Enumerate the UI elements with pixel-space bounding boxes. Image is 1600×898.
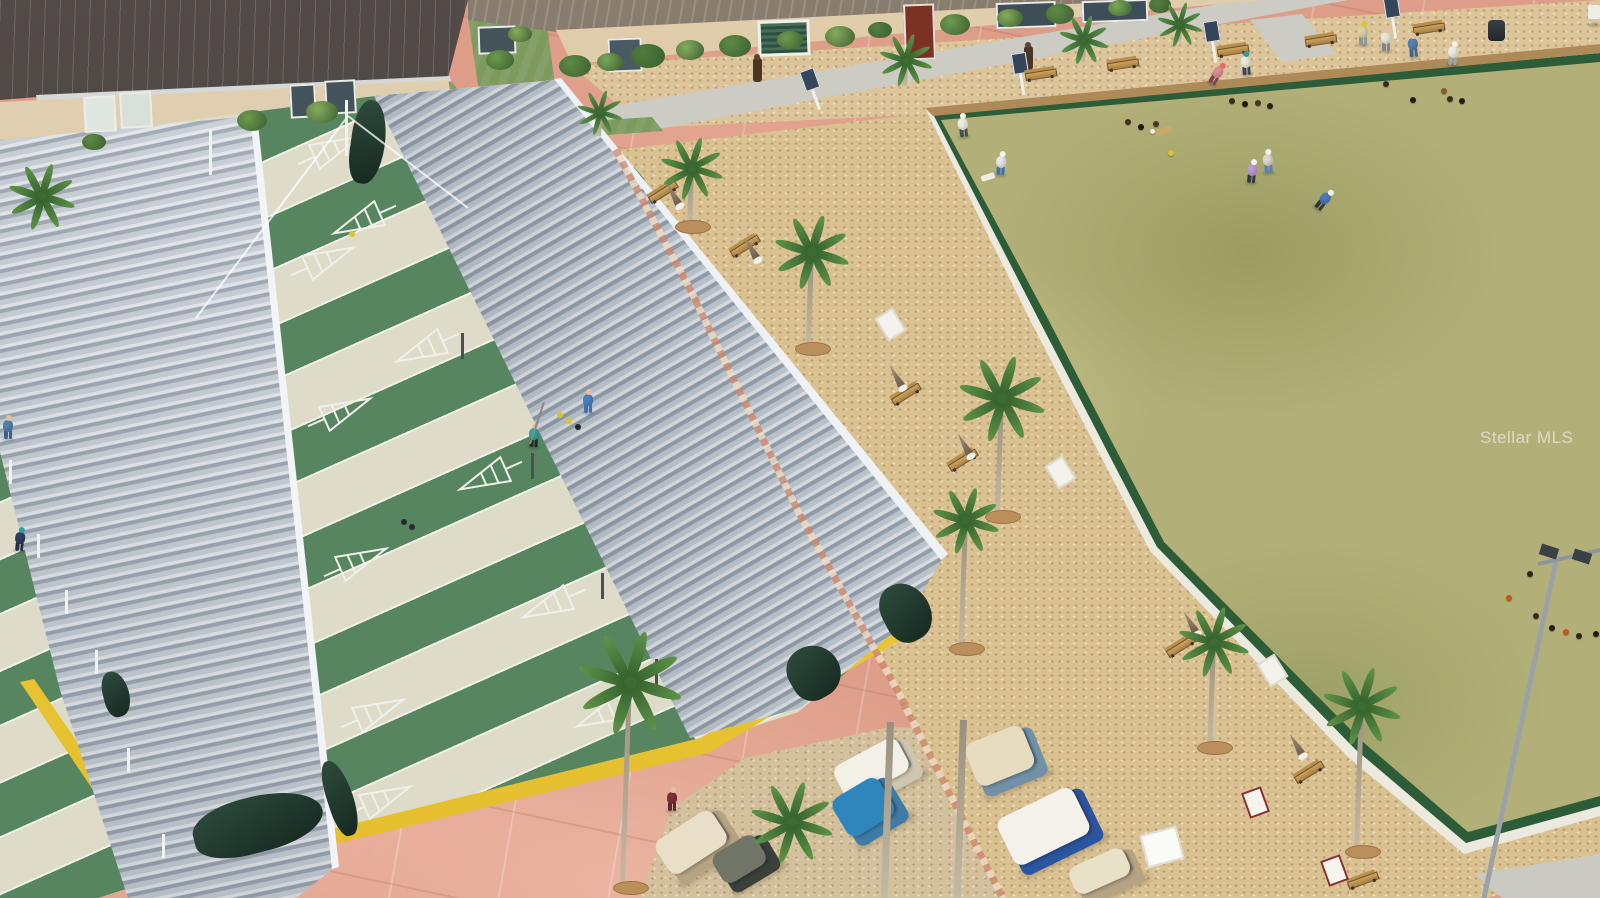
bench-leg [1438,29,1441,32]
closed-umbrella [1284,730,1309,762]
scoreboard-post [1210,39,1217,63]
bench-leg [1330,41,1333,44]
bocce-ball [1593,631,1599,637]
bush [306,101,338,123]
bush [868,22,892,39]
bocce-ball [1168,150,1174,156]
bocce-ball [1125,119,1131,125]
palm-crown-center [787,817,798,828]
bocce-ball [1441,88,1447,94]
window [83,95,117,133]
bocce-ball [1255,100,1261,106]
person [955,112,972,139]
bench-leg [1190,642,1194,646]
scoreboard-stand [798,68,826,112]
person-torso [583,394,593,406]
person [1260,149,1276,176]
floodlight-panel [1539,543,1560,559]
bocce-ball [1242,101,1248,107]
bench-leg [1132,65,1135,68]
palm-mulch-ring [985,510,1021,524]
court-triangle-marking [447,445,532,508]
palm-mulch-ring [1197,741,1233,755]
palm-crown-center [807,247,817,257]
golf-cart [962,718,1053,801]
person [993,151,1009,178]
person-head [1361,21,1367,27]
sign-board [1044,455,1076,489]
palm-crown-center [962,516,971,525]
stellar-mls-watermark: Stellar MLS [1480,428,1573,448]
shuffleboard-disc [349,231,355,237]
bocce-ball [1410,97,1416,103]
wind-curtain [778,636,850,709]
palm-crown-center [38,192,47,201]
bocce-ball [1506,595,1512,601]
person [1244,158,1261,185]
bush [237,110,267,131]
palm-mulch-ring [1345,845,1381,859]
bocce-ball [1153,121,1159,127]
palm-mulch-ring [949,642,985,656]
tiki-body [753,58,762,82]
bench-leg [1171,654,1175,658]
bocce-ball [1229,98,1235,104]
bocce-ball [1527,571,1533,577]
person [1,415,15,441]
shuffleboard-disc [575,424,581,430]
bocce-ball [1447,96,1453,102]
bench-leg [1372,878,1376,882]
bush [676,40,704,60]
palm-crown-center [997,393,1008,404]
court-triangle-marking [297,381,382,444]
sign-board [1241,786,1270,819]
person-shadow [1588,23,1600,27]
tiki-head [754,54,760,60]
wind-curtain [98,669,134,720]
bush [508,26,532,43]
bocce-ball [1563,629,1569,635]
palm-crown-center [1210,638,1219,647]
person-head [1265,149,1271,155]
white-post [9,460,12,484]
light-pole [1482,555,1560,898]
court-triangle-marking [313,531,398,594]
palm-crown-center [597,109,603,115]
bench-leg [735,254,739,258]
person [1310,185,1337,214]
shuffleboard-disc [401,519,407,525]
trash-can [1488,20,1505,41]
white-post [65,590,68,614]
tiki-statue [753,54,762,82]
closed-umbrella [884,362,909,394]
bench-leg [1050,75,1053,78]
window [119,91,153,129]
bush [1108,0,1132,16]
white-bin [1588,5,1600,19]
sign-board [1320,854,1349,887]
person-head [18,527,25,534]
palm-mulch-ring [795,342,831,356]
bush [825,26,855,47]
person-head [999,151,1005,157]
person-head [1384,27,1390,33]
palm-mulch-ring [613,881,649,895]
bench-leg [953,468,957,472]
white-post [345,100,348,156]
bush [631,44,665,68]
bocce-ball [1267,103,1273,109]
shuffleboard-disc [566,418,572,424]
palm-mulch-ring [675,220,711,234]
bocce-ball [1549,625,1555,631]
scene-objects [0,0,1600,898]
court-triangle-marking [510,573,595,636]
bench-leg [1318,768,1322,772]
bench-leg [1220,55,1223,58]
bench-leg [1110,69,1113,72]
bush [82,134,106,151]
white-post [162,834,165,858]
shuffleboard-disc [409,524,415,530]
person [581,389,595,415]
bush [777,31,803,49]
person-head [959,113,966,120]
person [1379,27,1393,53]
palm-crown-center [1081,37,1088,44]
bench [1292,759,1324,785]
person-torso [996,156,1007,169]
sign-board [1139,826,1185,869]
court-triangle-marking [280,230,365,293]
scoreboard-panel [1202,20,1220,43]
sign-board [874,307,906,341]
bush [486,50,514,70]
person-torso [1247,164,1258,177]
person-torso [667,792,677,804]
white-post [37,534,40,558]
person-head [1250,159,1257,166]
bocce-ball [1459,98,1465,104]
aerial-photo-recreation-complex: Stellar MLS [0,0,1600,898]
bocce-ball [1138,124,1144,130]
roof-support-post [531,453,534,479]
bench-leg [1351,886,1355,890]
person [12,526,28,553]
person-torso [1240,56,1251,69]
bench [1346,869,1378,891]
bench-leg [653,200,657,204]
roof-support-post [601,573,604,599]
person [1356,21,1370,47]
bench-leg [896,402,900,406]
person [1405,32,1421,59]
person-torso [15,532,26,545]
court-triangle-marking [330,682,415,745]
bench [1106,56,1138,73]
bush [597,53,623,71]
person-head [670,787,676,793]
white-post [127,748,130,772]
scoreboard-panel [799,67,820,92]
person-head [1409,33,1416,40]
palm-crown-center [1357,701,1367,711]
white-post [209,129,212,175]
person [1445,41,1461,68]
person [1238,51,1254,78]
person-head [1451,41,1457,47]
shuffleboard-disc [557,412,563,418]
palm-crown-center [1177,21,1183,27]
bush [559,55,591,77]
bench [1304,32,1336,49]
bush [719,35,751,57]
court-triangle-marking [384,317,469,380]
bench-leg [915,390,919,394]
bench-leg [1028,79,1031,82]
palm-crown-center [903,57,910,64]
wind-curtain [871,574,942,650]
person-torso [1448,46,1459,59]
scoreboard-panel [1382,0,1400,19]
bush [940,14,970,35]
person-torso [1358,26,1368,38]
person-head [1243,51,1249,57]
bocce-ball [1383,81,1389,87]
person-torso [1381,32,1391,44]
bench-leg [1308,45,1311,48]
bench-leg [1299,780,1303,784]
white-post [95,650,98,674]
wind-curtain [187,781,329,867]
tiki-head [1025,42,1031,48]
bocce-ball [1533,613,1539,619]
sign-board [1256,653,1288,687]
person-torso [1262,154,1273,167]
person [665,787,679,813]
roof-support-post [461,333,464,359]
scoreboard-post [1018,71,1025,95]
bush [1046,4,1074,24]
delivery-mat [1154,126,1172,137]
person-head [6,415,12,421]
bocce-ball [1576,633,1582,639]
person-head [586,389,592,395]
palm-crown-center [688,164,696,172]
palm-crown-center [624,676,637,689]
path-edging [692,299,804,518]
person-torso [3,420,13,432]
bush [997,9,1023,27]
